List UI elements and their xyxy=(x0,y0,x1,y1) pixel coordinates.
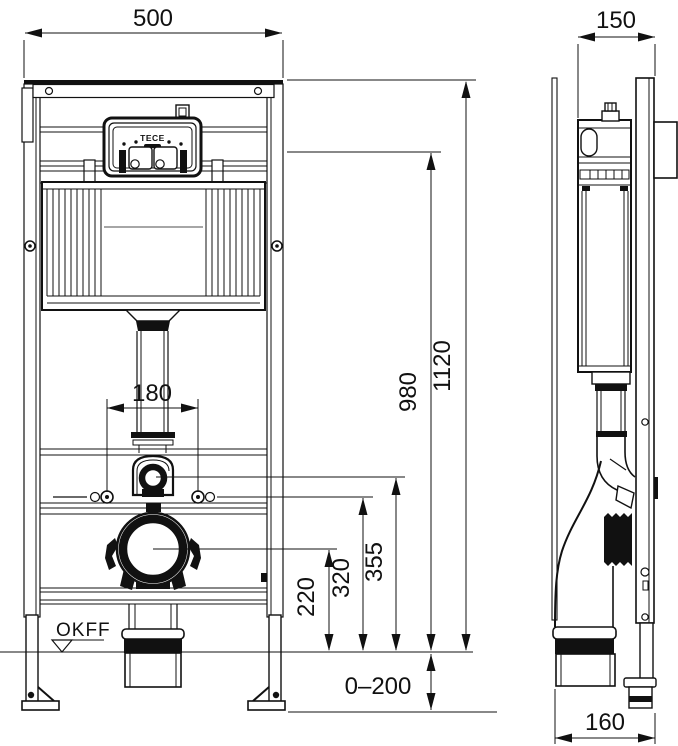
flush-bend-side xyxy=(592,372,635,508)
drain-socket xyxy=(105,503,201,590)
wc-connector-block xyxy=(604,513,632,566)
frame-channel-side xyxy=(636,78,654,623)
dim-label-total-height: 1120 xyxy=(429,340,456,392)
wall-anchor-plate xyxy=(22,88,33,142)
side-view-drawing xyxy=(552,78,677,708)
dim-label-supply-height: 355 xyxy=(361,542,388,582)
floor-level-label: OKFF xyxy=(56,620,111,641)
dim-floor-buildup: 0–200 xyxy=(288,654,497,712)
dim-label-outlet-offset: 160 xyxy=(585,709,625,736)
floor-level-triangle-icon xyxy=(52,640,72,652)
cistern-side xyxy=(578,103,631,372)
inlet-valve-stub xyxy=(602,111,619,121)
dim-label-outlet-height: 220 xyxy=(293,577,320,617)
frame-top-crossbar xyxy=(24,80,283,98)
dim-label-flush-unit-height: 980 xyxy=(395,372,422,412)
drain-outlet-front xyxy=(122,604,184,687)
front-rail-side xyxy=(552,78,557,620)
wall-bracket xyxy=(654,122,677,178)
dim-fixing-height: 320 xyxy=(217,497,373,651)
brand-logo: TECE xyxy=(140,133,165,143)
dim-frame-width: 500 xyxy=(24,5,283,78)
dim-label-floor-buildup: 0–200 xyxy=(345,673,412,700)
rear-leg-side xyxy=(624,623,656,708)
drain-elbow-side xyxy=(553,461,616,686)
installation-frame-technical-drawing: TECE xyxy=(0,0,678,746)
flush-actuation-unit: TECE xyxy=(104,105,201,176)
cistern-front xyxy=(42,182,265,310)
floor-level-marker: OKFF xyxy=(52,620,111,652)
dim-label-frame-width: 500 xyxy=(133,5,173,32)
dim-label-frame-depth: 150 xyxy=(596,7,636,34)
dim-label-fixing-spacing: 180 xyxy=(132,380,172,407)
